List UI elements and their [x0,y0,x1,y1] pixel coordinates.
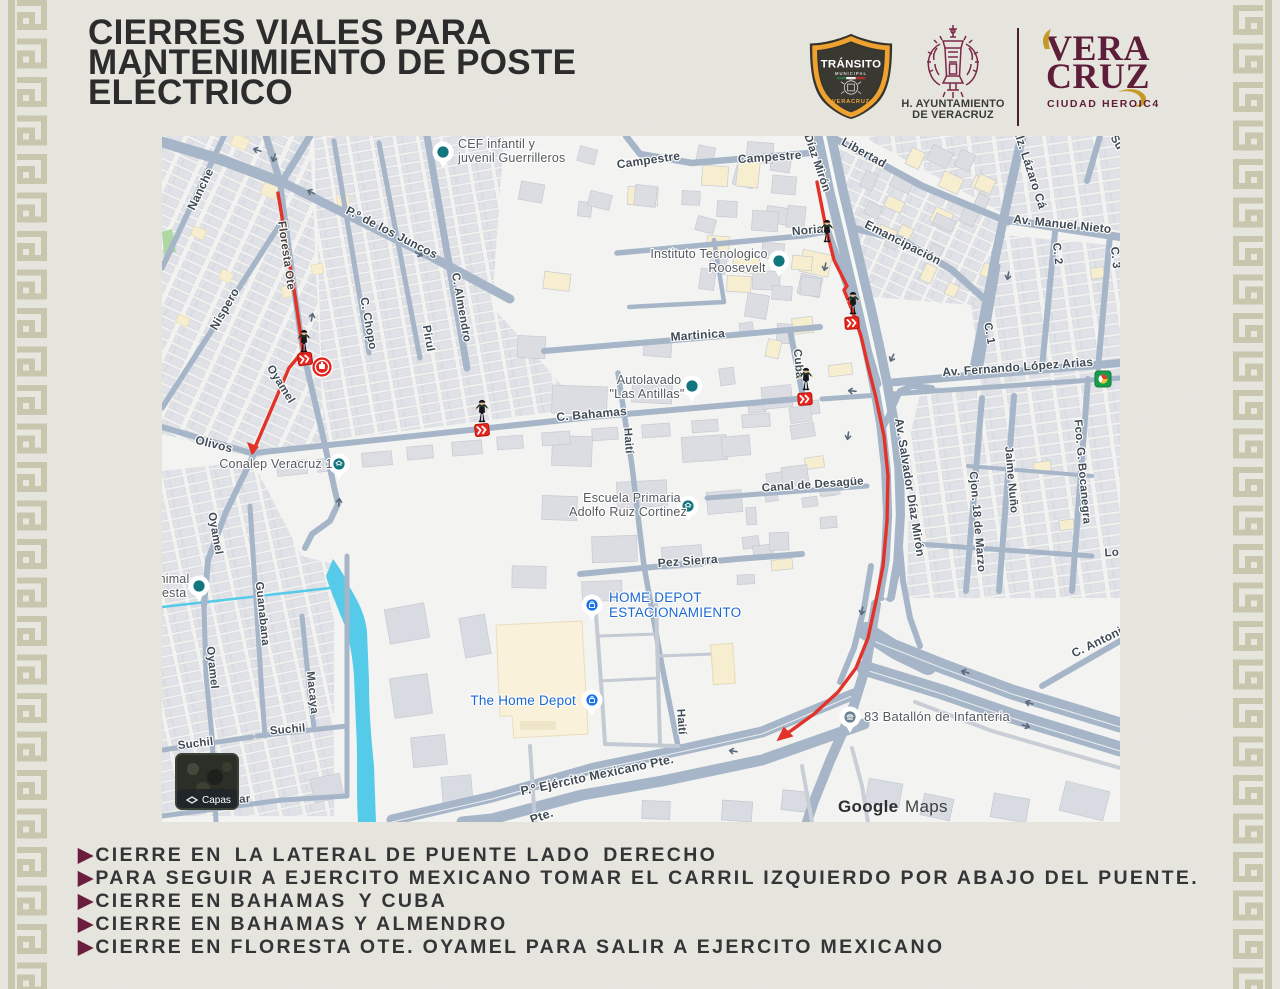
svg-text:Instituto Tecnologico: Instituto Tecnologico [650,247,767,261]
svg-text:Haití: Haití [674,708,688,735]
svg-text:Conalep Veracruz 1: Conalep Veracruz 1 [219,457,332,471]
svg-text:Google: Google [838,797,898,816]
svg-text:Lo: Lo [1104,547,1119,560]
svg-text:83 Batallón de Infanteria: 83 Batallón de Infanteria [864,709,1011,724]
svg-text:C. 2: C. 2 [1050,242,1064,265]
svg-text:ESTACIONAMIENTO: ESTACIONAMIENTO [609,605,741,620]
svg-text:Roosevelt: Roosevelt [708,261,766,275]
svg-text:Autolavado: Autolavado [617,373,682,387]
svg-text:HOME DEPOT: HOME DEPOT [609,590,702,605]
svg-text:Haití: Haití [621,427,635,454]
svg-text:resta: resta [162,586,186,600]
svg-text:Maps: Maps [905,797,948,816]
svg-text:nimal: nimal [162,572,189,586]
svg-text:VERACRUZ: VERACRUZ [832,99,870,105]
svg-text:Escuela Primaria: Escuela Primaria [583,491,681,505]
svg-text:Noria: Noria [791,222,824,239]
svg-text:Capas: Capas [202,795,231,806]
svg-text:Adolfo Ruiz Cortinez: Adolfo Ruiz Cortinez [569,505,687,519]
svg-text:The Home Depot: The Home Depot [470,693,576,708]
svg-text:juvenil Guerrilleros: juvenil Guerrilleros [457,151,566,165]
svg-text:TRÁNSITO: TRÁNSITO [821,57,882,70]
svg-text:MUNICIPAL: MUNICIPAL [835,71,867,76]
svg-text:CEF infantil y: CEF infantil y [458,137,536,151]
svg-text:"Las Antillas": "Las Antillas" [610,387,685,401]
